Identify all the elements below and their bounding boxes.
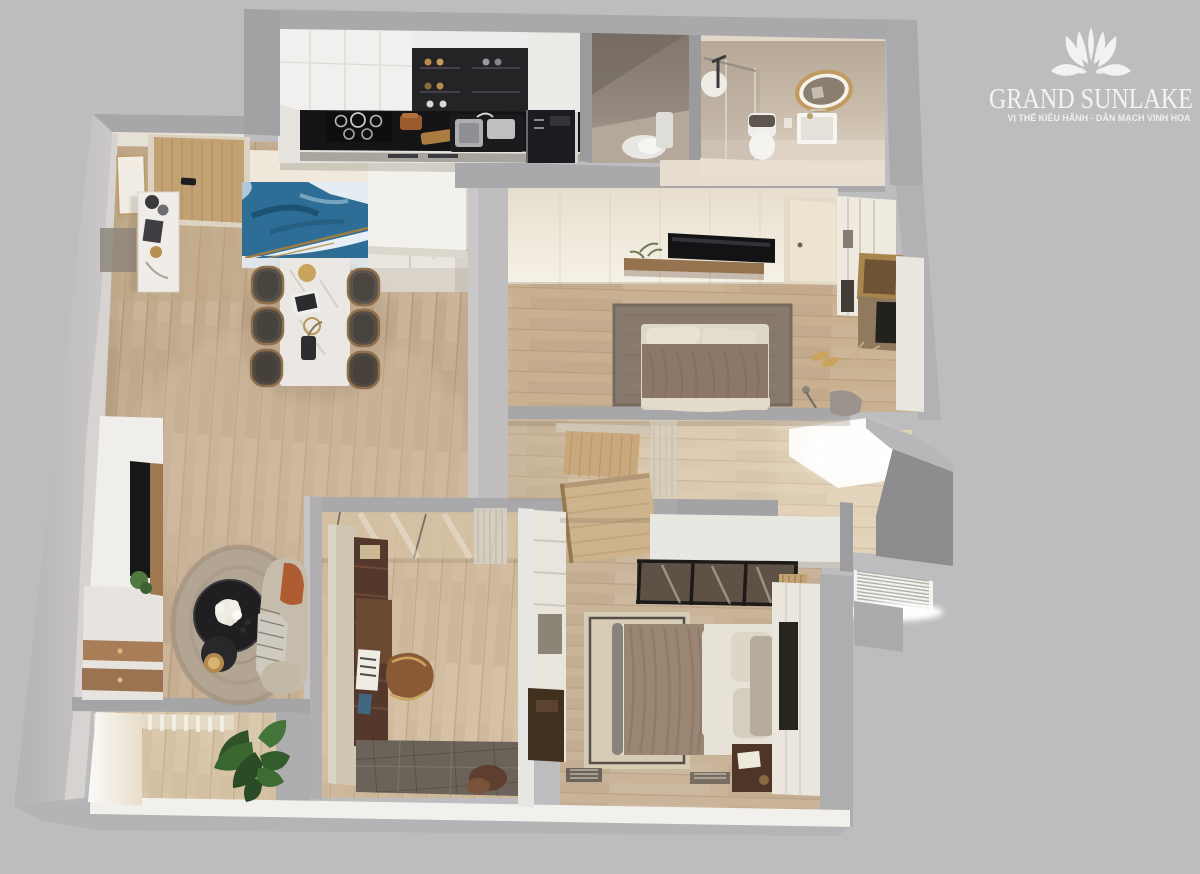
- svg-text:VỊ THẾ KIÊU HÃNH - DẪN MẠCH VI: VỊ THẾ KIÊU HÃNH - DẪN MẠCH VINH HOA: [1008, 112, 1191, 124]
- svg-text:GRAND SUNLAKE: GRAND SUNLAKE: [989, 84, 1193, 115]
